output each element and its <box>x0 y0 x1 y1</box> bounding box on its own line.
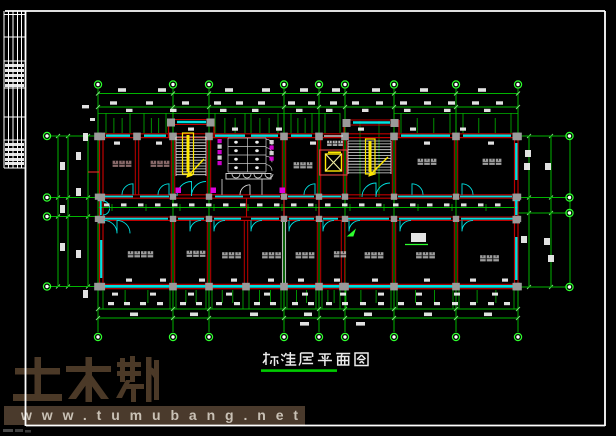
svg-text:www.tumubang.net: www.tumubang.net <box>20 407 308 423</box>
